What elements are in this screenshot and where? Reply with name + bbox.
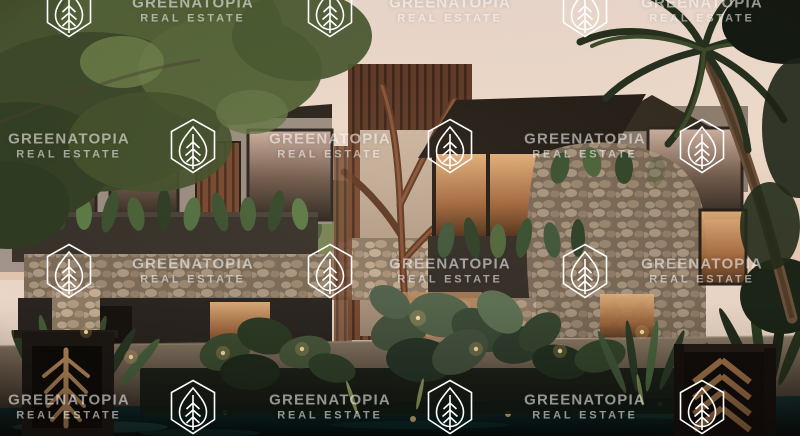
villa-render-image	[0, 0, 800, 436]
watermarked-villa-photo: GREENATOPIAREAL ESTATE GREENATOPIAREAL E…	[0, 0, 800, 436]
vignette	[0, 0, 800, 436]
